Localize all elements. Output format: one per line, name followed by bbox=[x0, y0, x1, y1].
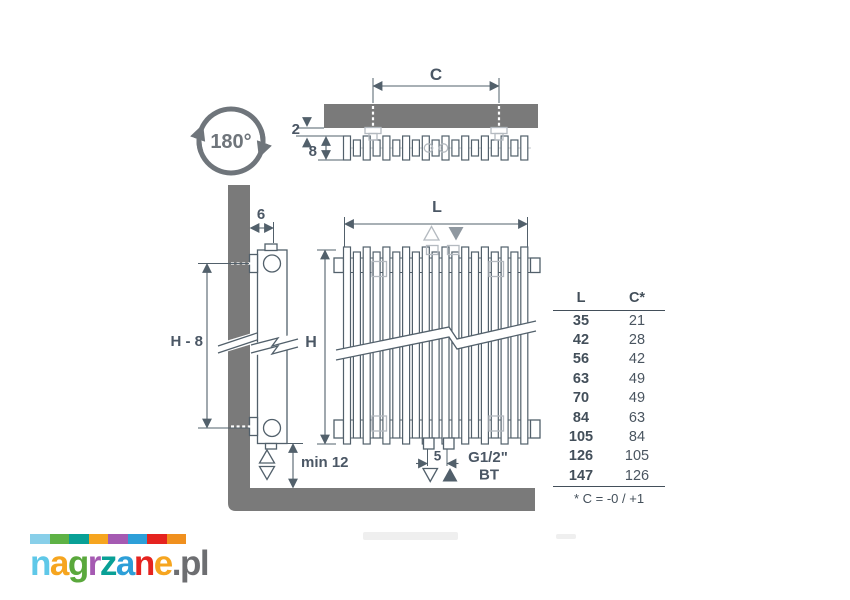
lc-table-body: 3521422856426349704984631058412610514712… bbox=[553, 311, 665, 487]
table-row: 10584 bbox=[553, 427, 665, 446]
dim-2-label: 2 bbox=[292, 121, 300, 138]
radiator-tube bbox=[422, 136, 429, 160]
table-row: 5642 bbox=[553, 350, 665, 369]
logo-bar-segment bbox=[167, 534, 187, 544]
lc-table: L C* 35214228564263497049846310584126105… bbox=[553, 289, 665, 506]
radiator-tube bbox=[481, 247, 488, 444]
connection-code-label: BT bbox=[479, 467, 499, 484]
plan-view: C 2 8 bbox=[292, 65, 538, 160]
faint-artifact bbox=[556, 534, 576, 539]
radiator-tube bbox=[393, 140, 400, 156]
c-value: 28 bbox=[609, 330, 665, 349]
radiator-tube bbox=[491, 140, 498, 156]
radiator-tube bbox=[344, 136, 351, 160]
faint-artifact bbox=[363, 532, 458, 540]
table-row: 7049 bbox=[553, 389, 665, 408]
l-value: 70 bbox=[553, 389, 609, 408]
logo-letter: r bbox=[88, 544, 100, 583]
rotation-label: 180° bbox=[210, 131, 251, 153]
radiator-tube bbox=[383, 136, 390, 160]
l-value: 56 bbox=[553, 350, 609, 369]
technical-drawing: 180° C bbox=[0, 0, 850, 600]
logo-letter: p bbox=[180, 544, 200, 583]
dimension-8-depth: 8 bbox=[309, 138, 343, 161]
logo-bar-segment bbox=[50, 534, 70, 544]
wall-top bbox=[324, 104, 538, 128]
c-value: 21 bbox=[609, 311, 665, 331]
radiator-tube bbox=[472, 140, 479, 156]
radiator-tube bbox=[511, 140, 518, 156]
logo-letter: n bbox=[30, 544, 50, 583]
c-value: 49 bbox=[609, 369, 665, 388]
dim-h-label: H bbox=[305, 334, 317, 351]
c-value: 126 bbox=[609, 466, 665, 486]
c-value: 49 bbox=[609, 389, 665, 408]
connection-size-label: G1/2" bbox=[468, 449, 508, 466]
c-value: 42 bbox=[609, 350, 665, 369]
radiator-tube bbox=[521, 136, 528, 160]
l-value: 35 bbox=[553, 311, 609, 331]
collector-end bbox=[531, 258, 541, 273]
radiator-tube bbox=[442, 247, 449, 444]
radiator-tube bbox=[491, 252, 498, 438]
radiator-top-stub bbox=[265, 244, 277, 251]
c-value: 84 bbox=[609, 427, 665, 446]
triangle-up-filled-icon bbox=[443, 468, 458, 482]
triangle-down-outline-icon bbox=[423, 469, 438, 482]
triangle-up-outline-icon bbox=[260, 450, 275, 463]
table-row: 6349 bbox=[553, 369, 665, 388]
logo-bar-segment bbox=[147, 534, 167, 544]
l-value: 84 bbox=[553, 408, 609, 427]
logo-bar-segment bbox=[30, 534, 50, 544]
l-value: 126 bbox=[553, 447, 609, 466]
radiator-tube bbox=[511, 252, 518, 438]
dimension-5: 5 bbox=[416, 449, 459, 467]
dimension-6: 6 bbox=[251, 206, 274, 243]
logo-letter: z bbox=[100, 544, 116, 583]
radiator-tube bbox=[521, 247, 528, 444]
collector-pipe bbox=[264, 420, 281, 437]
dim-l-label: L bbox=[432, 199, 442, 216]
l-value: 147 bbox=[553, 466, 609, 486]
table-row: 126105 bbox=[553, 447, 665, 466]
logo-letter: . bbox=[172, 544, 180, 583]
radiator-tube bbox=[403, 136, 410, 160]
l-value: 105 bbox=[553, 427, 609, 446]
dim-c-label: C bbox=[430, 65, 442, 84]
table-footnote: * C = -0 / +1 bbox=[553, 487, 665, 506]
triangle-down-outline-icon bbox=[260, 467, 275, 480]
radiator-tube bbox=[481, 136, 488, 160]
l-value: 42 bbox=[553, 330, 609, 349]
collector-end bbox=[531, 420, 541, 438]
dim-h8-label: H - 8 bbox=[170, 333, 203, 350]
bottom-connection-stub bbox=[424, 438, 435, 449]
c-value: 105 bbox=[609, 447, 665, 466]
logo-letter: l bbox=[200, 544, 208, 583]
radiator-tube bbox=[353, 140, 360, 156]
table-row: 8463 bbox=[553, 408, 665, 427]
radiator-tube bbox=[412, 252, 419, 438]
c-value: 63 bbox=[609, 408, 665, 427]
logo-letter: a bbox=[116, 544, 134, 583]
logo-bar-segment bbox=[128, 534, 148, 544]
l-value: 63 bbox=[553, 369, 609, 388]
dimension-min-12: min 12 bbox=[260, 444, 349, 488]
collector-end bbox=[334, 420, 344, 438]
logo-wordmark: nagrzane.pl bbox=[30, 546, 208, 581]
bottom-connection-stub bbox=[444, 438, 455, 449]
collector-pipe bbox=[264, 255, 281, 272]
col-header-c: C* bbox=[609, 289, 665, 311]
radiator-bottom-stub bbox=[266, 444, 277, 450]
table-row: 4228 bbox=[553, 330, 665, 349]
collector-end bbox=[334, 258, 344, 273]
radiator-tube bbox=[422, 247, 429, 444]
radiator-tube bbox=[373, 140, 380, 156]
logo-letter: g bbox=[68, 544, 88, 583]
radiator-tube bbox=[452, 140, 459, 156]
dimension-c: C bbox=[373, 65, 499, 103]
logo-letter: e bbox=[154, 544, 172, 583]
dim-5-label: 5 bbox=[434, 449, 442, 464]
front-view: L H 5 G1/2" BT bbox=[305, 199, 540, 484]
logo-letter: a bbox=[50, 544, 68, 583]
logo-bar-segment bbox=[69, 534, 89, 544]
radiator-tube bbox=[432, 252, 439, 438]
table-row: 3521 bbox=[553, 311, 665, 331]
dim-min12-label: min 12 bbox=[301, 454, 349, 471]
logo-bar-segment bbox=[108, 534, 128, 544]
logo-bar-segment bbox=[89, 534, 109, 544]
col-header-l: L bbox=[553, 289, 609, 311]
triangle-up-light-icon bbox=[424, 227, 439, 241]
logo-color-bar bbox=[30, 534, 186, 544]
radiator-tube bbox=[412, 140, 419, 156]
triangle-down-filled-icon bbox=[449, 227, 464, 241]
radiator-dimension-diagram: 180° C bbox=[0, 0, 850, 600]
logo-letter: n bbox=[134, 544, 154, 583]
radiator-tube bbox=[462, 136, 469, 160]
rotation-180-icon: 180° bbox=[199, 109, 263, 173]
dimension-h: H bbox=[305, 250, 336, 444]
dim-6-label: 6 bbox=[257, 206, 265, 223]
dim-8-label: 8 bbox=[309, 143, 317, 160]
table-row: 147126 bbox=[553, 466, 665, 486]
logo: nagrzane.pl bbox=[30, 534, 208, 581]
radiator-tube bbox=[344, 247, 351, 444]
